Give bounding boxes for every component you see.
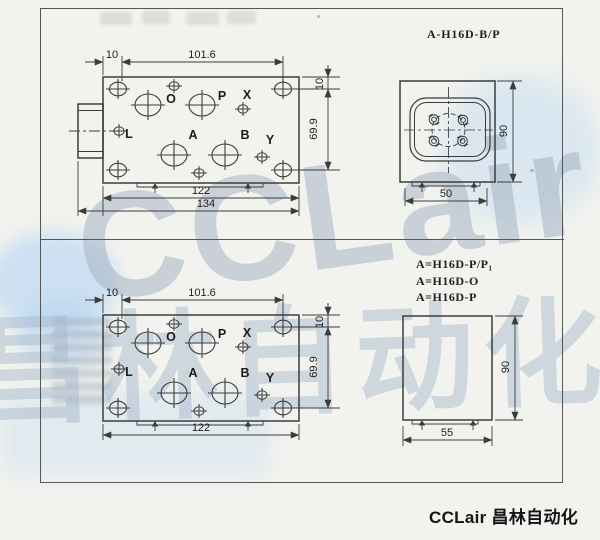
model-label-list: A=H16D-P/P₁ A=H16D-O A=H16D-P (416, 256, 493, 306)
dim-bolt-span: 69.9 (308, 118, 320, 139)
section-divider-line (40, 239, 564, 240)
port-label-p: P (218, 89, 226, 103)
top-plan-view: O P X L A B Y 10 101.6 122 134 10 69.9 (60, 40, 345, 220)
dim-top-edge: 10 (314, 316, 326, 328)
port-label-b: B (240, 366, 249, 380)
model-label-variant-3: A=H16D-P (416, 289, 493, 306)
model-label-top: A-H16D-B/P (427, 27, 500, 42)
dimension-texts: 10 101.6 122 10 69.9 (106, 287, 326, 434)
dim-edge-offset: 10 (106, 49, 118, 61)
top-side-view: 90 50 (390, 60, 540, 215)
bottom-side-view: 90 55 (390, 300, 540, 460)
dim-bolt-pitch: 101.6 (188, 49, 216, 61)
port-label-l: L (125, 127, 133, 141)
dim-bolt-pitch: 101.6 (188, 287, 216, 299)
dim-width: 50 (440, 188, 452, 200)
bottom-plan-view: O P X L A B Y 10 101.6 122 10 69.9 (60, 285, 345, 465)
dimension-texts: 10 101.6 122 134 10 69.9 (106, 49, 326, 210)
dim-top-edge: 10 (314, 78, 326, 90)
port-label-p: P (218, 327, 226, 341)
model-label-variant-1: A=H16D-P/P₁ (416, 256, 493, 273)
port-label-b: B (240, 128, 249, 142)
port-label-y: Y (266, 133, 275, 147)
port-label-a: A (188, 366, 197, 380)
dim-body-width: 122 (192, 422, 210, 434)
port-label-x: X (243, 326, 252, 340)
port-label-o: O (166, 92, 176, 106)
port-label-a: A (188, 128, 197, 142)
port-label-x: X (243, 88, 252, 102)
footer-brand-text: CCLair 昌林自动化 (429, 503, 578, 528)
port-label-l: L (125, 365, 133, 379)
dimension-lines (403, 316, 523, 446)
port-label-y: Y (266, 371, 275, 385)
dim-edge-offset: 10 (106, 287, 118, 299)
dim-overall-width: 134 (197, 198, 215, 210)
side-connector-detail (69, 111, 116, 152)
model-label-variant-2: A=H16D-O (416, 273, 493, 290)
dim-height: 90 (500, 361, 512, 373)
dim-bolt-span: 69.9 (308, 356, 320, 377)
side-body-outline (403, 316, 492, 420)
connector-face (410, 98, 490, 161)
dim-width: 55 (441, 427, 453, 439)
dim-body-width: 122 (192, 185, 210, 197)
dim-height: 90 (498, 125, 510, 137)
port-label-o: O (166, 330, 176, 344)
